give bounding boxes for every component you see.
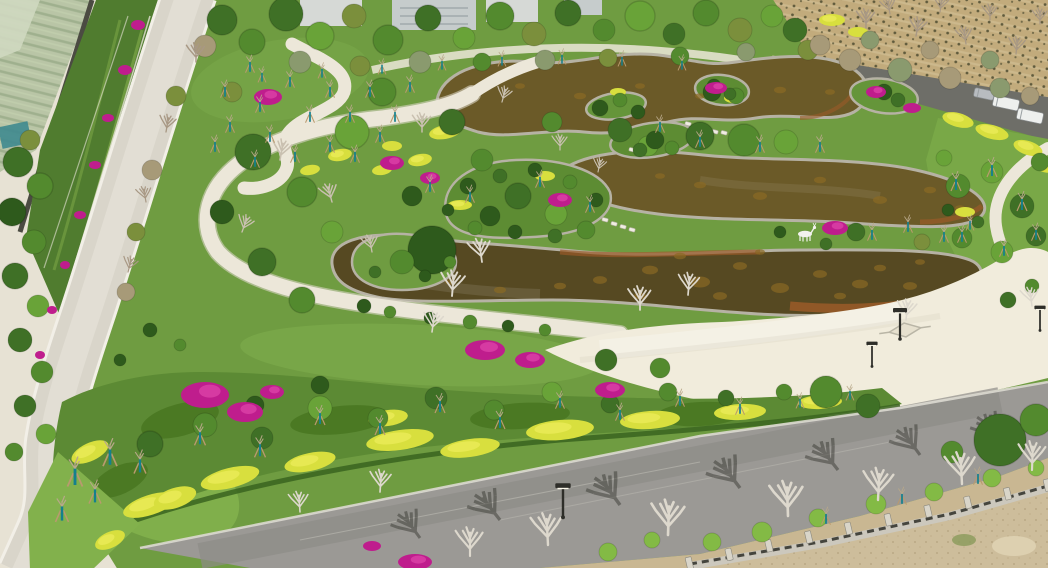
tree-canopy bbox=[239, 29, 265, 55]
tree-canopy bbox=[542, 382, 562, 402]
tree-canopy bbox=[939, 67, 961, 89]
algae-patch bbox=[574, 93, 586, 100]
algae-patch bbox=[771, 283, 789, 293]
algae-patch bbox=[642, 266, 658, 275]
magenta-flowers bbox=[227, 402, 263, 422]
tree-canopy bbox=[925, 483, 943, 501]
tree-canopy bbox=[27, 295, 49, 317]
tree-canopy bbox=[914, 234, 930, 250]
tree-canopy bbox=[287, 177, 317, 207]
tree-canopy bbox=[946, 174, 970, 198]
tree-canopy bbox=[555, 0, 581, 26]
magenta-flowers bbox=[118, 65, 132, 75]
tree-canopy bbox=[235, 134, 271, 170]
sand-pile bbox=[992, 536, 1036, 556]
tree-canopy bbox=[415, 5, 441, 31]
tree-canopy bbox=[633, 143, 647, 157]
tree-canopy bbox=[143, 323, 157, 337]
tree-canopy bbox=[306, 22, 334, 50]
tree-canopy bbox=[942, 204, 954, 216]
tree-canopy bbox=[737, 43, 755, 61]
tree-canopy bbox=[289, 287, 315, 313]
tree-canopy bbox=[535, 50, 555, 70]
tree-canopy bbox=[659, 383, 677, 401]
tree-canopy bbox=[439, 109, 465, 135]
tree-canopy bbox=[972, 216, 984, 228]
tree-canopy bbox=[505, 183, 531, 209]
tree-canopy bbox=[1021, 87, 1039, 105]
tree-canopy bbox=[22, 230, 46, 254]
tree-canopy bbox=[493, 169, 507, 183]
tree-canopy bbox=[508, 225, 522, 239]
algae-patch bbox=[554, 283, 566, 290]
tree-canopy bbox=[31, 361, 53, 383]
algae-patch bbox=[915, 259, 925, 265]
magenta-flowers bbox=[822, 221, 848, 235]
tree-canopy bbox=[593, 19, 615, 41]
magenta-flowers bbox=[89, 161, 101, 169]
tree-canopy bbox=[644, 532, 660, 548]
tree-canopy bbox=[20, 130, 40, 150]
tree-canopy bbox=[936, 150, 952, 166]
magenta-flowers bbox=[465, 340, 505, 360]
magenta-flowers bbox=[60, 261, 70, 269]
magenta-flowers bbox=[254, 89, 282, 105]
tree-canopy bbox=[210, 200, 234, 224]
magenta-flowers bbox=[595, 382, 625, 398]
tree-canopy bbox=[671, 47, 689, 65]
tree-canopy bbox=[471, 149, 493, 171]
park-scene bbox=[0, 0, 1048, 568]
algae-patch bbox=[733, 262, 747, 270]
magenta-flowers bbox=[515, 352, 545, 368]
algae-patch bbox=[593, 276, 607, 284]
algae-patch bbox=[494, 287, 506, 294]
tree-canopy bbox=[776, 384, 792, 400]
tree-canopy bbox=[563, 175, 577, 189]
tree-canopy bbox=[761, 5, 783, 27]
tree-canopy bbox=[342, 4, 366, 28]
tree-canopy bbox=[1028, 460, 1044, 476]
algae-patch bbox=[874, 265, 886, 272]
tree-canopy bbox=[335, 115, 369, 149]
tree-canopy bbox=[207, 5, 237, 35]
tree-canopy bbox=[251, 427, 273, 449]
magenta-flowers bbox=[866, 86, 886, 98]
algae-patch bbox=[515, 83, 525, 89]
algae-patch bbox=[852, 280, 868, 289]
tree-canopy bbox=[453, 27, 475, 49]
tree-canopy bbox=[774, 226, 786, 238]
tree-canopy bbox=[1020, 404, 1048, 436]
tree-canopy bbox=[460, 178, 476, 194]
tree-canopy bbox=[311, 376, 329, 394]
yellow-hedge bbox=[382, 141, 402, 151]
algae-patch bbox=[755, 249, 765, 255]
tree-canopy bbox=[27, 173, 53, 199]
tree-canopy bbox=[36, 424, 56, 444]
algae-patch bbox=[713, 292, 727, 300]
tree-canopy bbox=[193, 413, 217, 437]
algae-patch bbox=[813, 270, 827, 278]
algae-patch bbox=[635, 83, 645, 89]
tree-canopy bbox=[468, 221, 482, 235]
algae-patch bbox=[674, 253, 686, 260]
tree-canopy bbox=[2, 263, 28, 289]
tree-canopy bbox=[1000, 292, 1016, 308]
tree-canopy bbox=[631, 105, 645, 119]
tree-canopy bbox=[599, 49, 617, 67]
tree-canopy bbox=[752, 522, 772, 542]
magenta-flowers bbox=[131, 20, 145, 30]
magenta-flowers bbox=[363, 541, 381, 551]
tree-canopy bbox=[484, 400, 504, 420]
weed-patch bbox=[952, 534, 976, 546]
magenta-flowers bbox=[380, 156, 404, 170]
tree-canopy bbox=[888, 58, 912, 82]
tree-canopy bbox=[595, 349, 617, 371]
tree-canopy bbox=[1031, 153, 1048, 171]
yellow-hedge bbox=[955, 207, 975, 217]
tree-canopy bbox=[542, 112, 562, 132]
tree-canopy bbox=[166, 86, 186, 106]
tree-canopy bbox=[14, 395, 36, 417]
tree-canopy bbox=[646, 131, 664, 149]
tree-canopy bbox=[921, 41, 939, 59]
tree-canopy bbox=[402, 186, 422, 206]
tree-canopy bbox=[425, 387, 447, 409]
yellow-hedge bbox=[819, 14, 845, 26]
tree-canopy bbox=[248, 248, 276, 276]
algae-patch bbox=[903, 282, 917, 290]
algae-patch bbox=[694, 182, 706, 189]
tree-canopy bbox=[390, 250, 414, 274]
tree-canopy bbox=[613, 93, 627, 107]
tree-canopy bbox=[350, 56, 370, 76]
magenta-flowers bbox=[903, 103, 921, 113]
tree-canopy bbox=[463, 315, 477, 329]
tree-canopy bbox=[269, 0, 303, 31]
tree-canopy bbox=[592, 100, 608, 116]
tree-canopy bbox=[444, 256, 456, 268]
tree-canopy bbox=[783, 18, 807, 42]
tree-canopy bbox=[289, 51, 311, 73]
aerial-park-photo bbox=[0, 0, 1048, 568]
tree-canopy bbox=[442, 204, 454, 216]
magenta-flowers bbox=[548, 193, 572, 207]
tree-canopy bbox=[522, 22, 546, 46]
algae-patch bbox=[753, 192, 767, 200]
tree-canopy bbox=[502, 320, 514, 332]
tree-canopy bbox=[373, 25, 403, 55]
tree-canopy bbox=[480, 206, 500, 226]
tree-canopy bbox=[114, 354, 126, 366]
algae-patch bbox=[774, 87, 786, 94]
tree-canopy bbox=[127, 223, 145, 241]
tree-canopy bbox=[8, 328, 32, 352]
magenta-flowers bbox=[47, 306, 57, 314]
tree-canopy bbox=[866, 494, 886, 514]
tree-canopy bbox=[847, 223, 865, 241]
magenta-flowers bbox=[74, 211, 86, 219]
magenta-flowers bbox=[181, 382, 229, 408]
tree-canopy bbox=[983, 469, 1001, 487]
tree-canopy bbox=[728, 18, 752, 42]
tree-canopy bbox=[810, 35, 830, 55]
tree-canopy bbox=[891, 93, 905, 107]
tree-canopy bbox=[981, 51, 999, 69]
tree-canopy bbox=[577, 221, 595, 239]
tree-canopy bbox=[174, 339, 186, 351]
algae-patch bbox=[825, 89, 835, 95]
tree-canopy bbox=[3, 147, 33, 177]
tree-canopy bbox=[473, 53, 491, 71]
tree-canopy bbox=[663, 23, 685, 45]
algae-patch bbox=[655, 173, 665, 179]
rust-edge bbox=[560, 252, 760, 255]
tree-canopy bbox=[703, 533, 721, 551]
tree-canopy bbox=[117, 283, 135, 301]
tree-canopy bbox=[810, 376, 842, 408]
tree-canopy bbox=[321, 221, 343, 243]
algae-patch bbox=[814, 177, 826, 184]
tree-canopy bbox=[384, 306, 396, 318]
tree-canopy bbox=[0, 198, 26, 226]
algae-patch bbox=[924, 187, 936, 194]
tree-canopy bbox=[974, 414, 1026, 466]
magenta-flowers bbox=[705, 82, 727, 94]
magenta-flowers bbox=[35, 351, 45, 359]
tree-canopy bbox=[419, 270, 431, 282]
tree-canopy bbox=[861, 31, 879, 49]
tree-canopy bbox=[5, 443, 23, 461]
magenta-flowers bbox=[260, 385, 284, 399]
tree-canopy bbox=[990, 78, 1010, 98]
tree-canopy bbox=[599, 543, 617, 561]
tree-canopy bbox=[820, 238, 832, 250]
tree-canopy bbox=[608, 118, 632, 142]
tree-canopy bbox=[625, 1, 655, 31]
tree-canopy bbox=[693, 0, 719, 26]
magenta-flowers bbox=[102, 114, 114, 122]
tree-canopy bbox=[774, 130, 798, 154]
algae-patch bbox=[873, 196, 887, 204]
tree-canopy bbox=[486, 2, 514, 30]
tree-canopy bbox=[368, 408, 388, 428]
tree-canopy bbox=[856, 394, 880, 418]
tree-canopy bbox=[409, 51, 431, 73]
tree-canopy bbox=[718, 390, 734, 406]
tree-canopy bbox=[650, 358, 670, 378]
tree-canopy bbox=[539, 324, 551, 336]
tree-canopy bbox=[142, 160, 162, 180]
tree-canopy bbox=[548, 229, 562, 243]
tree-canopy bbox=[357, 299, 371, 313]
tree-canopy bbox=[839, 49, 861, 71]
tree-canopy bbox=[369, 266, 381, 278]
tree-canopy bbox=[728, 124, 760, 156]
tree-canopy bbox=[665, 141, 679, 155]
algae-patch bbox=[834, 293, 846, 300]
